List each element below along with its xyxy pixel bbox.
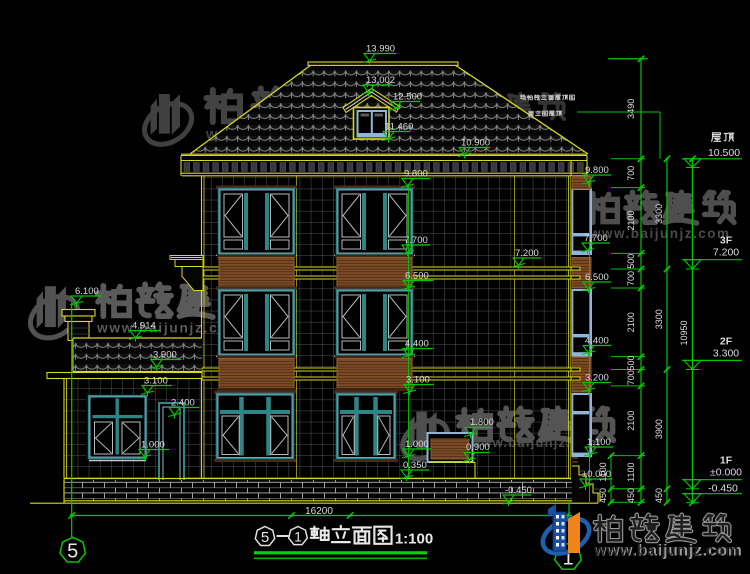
svg-text:450: 450 [626, 488, 636, 503]
svg-text:3.100: 3.100 [406, 375, 430, 386]
svg-text:3F: 3F [720, 235, 733, 247]
svg-text:1.100: 1.100 [587, 437, 611, 448]
svg-text:13.990: 13.990 [366, 44, 395, 55]
svg-text:16200: 16200 [305, 506, 333, 517]
svg-text:2100: 2100 [626, 312, 636, 332]
svg-text:www.baijunjz.com: www.baijunjz.com [593, 542, 739, 559]
svg-text:0.900: 0.900 [466, 442, 490, 453]
svg-text:10.500: 10.500 [708, 147, 740, 159]
svg-text:1.000: 1.000 [405, 439, 429, 450]
svg-text:12.500: 12.500 [393, 92, 422, 103]
svg-text:5: 5 [67, 541, 78, 563]
svg-text:3300: 3300 [654, 309, 664, 329]
svg-text:±0.000: ±0.000 [710, 467, 742, 479]
svg-text:3.300: 3.300 [713, 347, 739, 359]
svg-text:500: 500 [626, 254, 636, 269]
svg-text:450: 450 [654, 488, 664, 503]
svg-text:11.460: 11.460 [385, 122, 413, 133]
svg-text:3.100: 3.100 [144, 376, 168, 387]
svg-text:4.400: 4.400 [585, 336, 609, 347]
svg-text:1:100: 1:100 [395, 531, 433, 548]
svg-text:7.200: 7.200 [515, 248, 539, 259]
svg-text:3300: 3300 [654, 204, 664, 224]
svg-text:3900: 3900 [654, 419, 664, 439]
svg-text:6.500: 6.500 [585, 272, 609, 283]
svg-text:7.700: 7.700 [584, 233, 608, 244]
svg-text:1100: 1100 [598, 462, 608, 481]
svg-text:7.200: 7.200 [713, 247, 739, 259]
svg-text:2.400: 2.400 [171, 398, 195, 409]
svg-text:6.500: 6.500 [405, 271, 429, 282]
svg-text:3.900: 3.900 [153, 350, 177, 361]
svg-text:-0.450: -0.450 [505, 485, 532, 496]
svg-text:13.002: 13.002 [366, 75, 395, 86]
svg-text:3.200: 3.200 [585, 373, 609, 384]
svg-text:2F: 2F [720, 335, 733, 347]
svg-text:6.100: 6.100 [75, 286, 99, 297]
svg-text:700: 700 [626, 166, 636, 181]
svg-text:0.350: 0.350 [403, 460, 427, 471]
svg-text:www.baijunjz.com: www.baijunjz.com [589, 226, 731, 241]
svg-text:4.400: 4.400 [405, 339, 429, 350]
svg-text:3490: 3490 [626, 99, 636, 119]
svg-text:10950: 10950 [679, 320, 689, 345]
svg-text:1.800: 1.800 [470, 417, 494, 428]
svg-text:5: 5 [261, 529, 269, 546]
svg-text:4.914: 4.914 [132, 321, 156, 332]
svg-text:-0.450: -0.450 [708, 483, 738, 495]
svg-text:2100: 2100 [626, 411, 636, 431]
svg-text:9.800: 9.800 [404, 169, 428, 180]
svg-text:500: 500 [626, 356, 636, 371]
svg-text:1F: 1F [720, 455, 733, 467]
svg-text:7.700: 7.700 [404, 235, 428, 246]
svg-text:450: 450 [598, 488, 608, 503]
svg-text:2100: 2100 [626, 210, 636, 230]
svg-text:1.000: 1.000 [141, 440, 165, 451]
svg-text:700: 700 [626, 271, 636, 286]
svg-text:1: 1 [294, 529, 302, 545]
svg-text:10.900: 10.900 [461, 138, 490, 149]
svg-text:1100: 1100 [626, 463, 636, 482]
svg-text:9.800: 9.800 [585, 165, 609, 176]
svg-text:700: 700 [626, 370, 636, 385]
